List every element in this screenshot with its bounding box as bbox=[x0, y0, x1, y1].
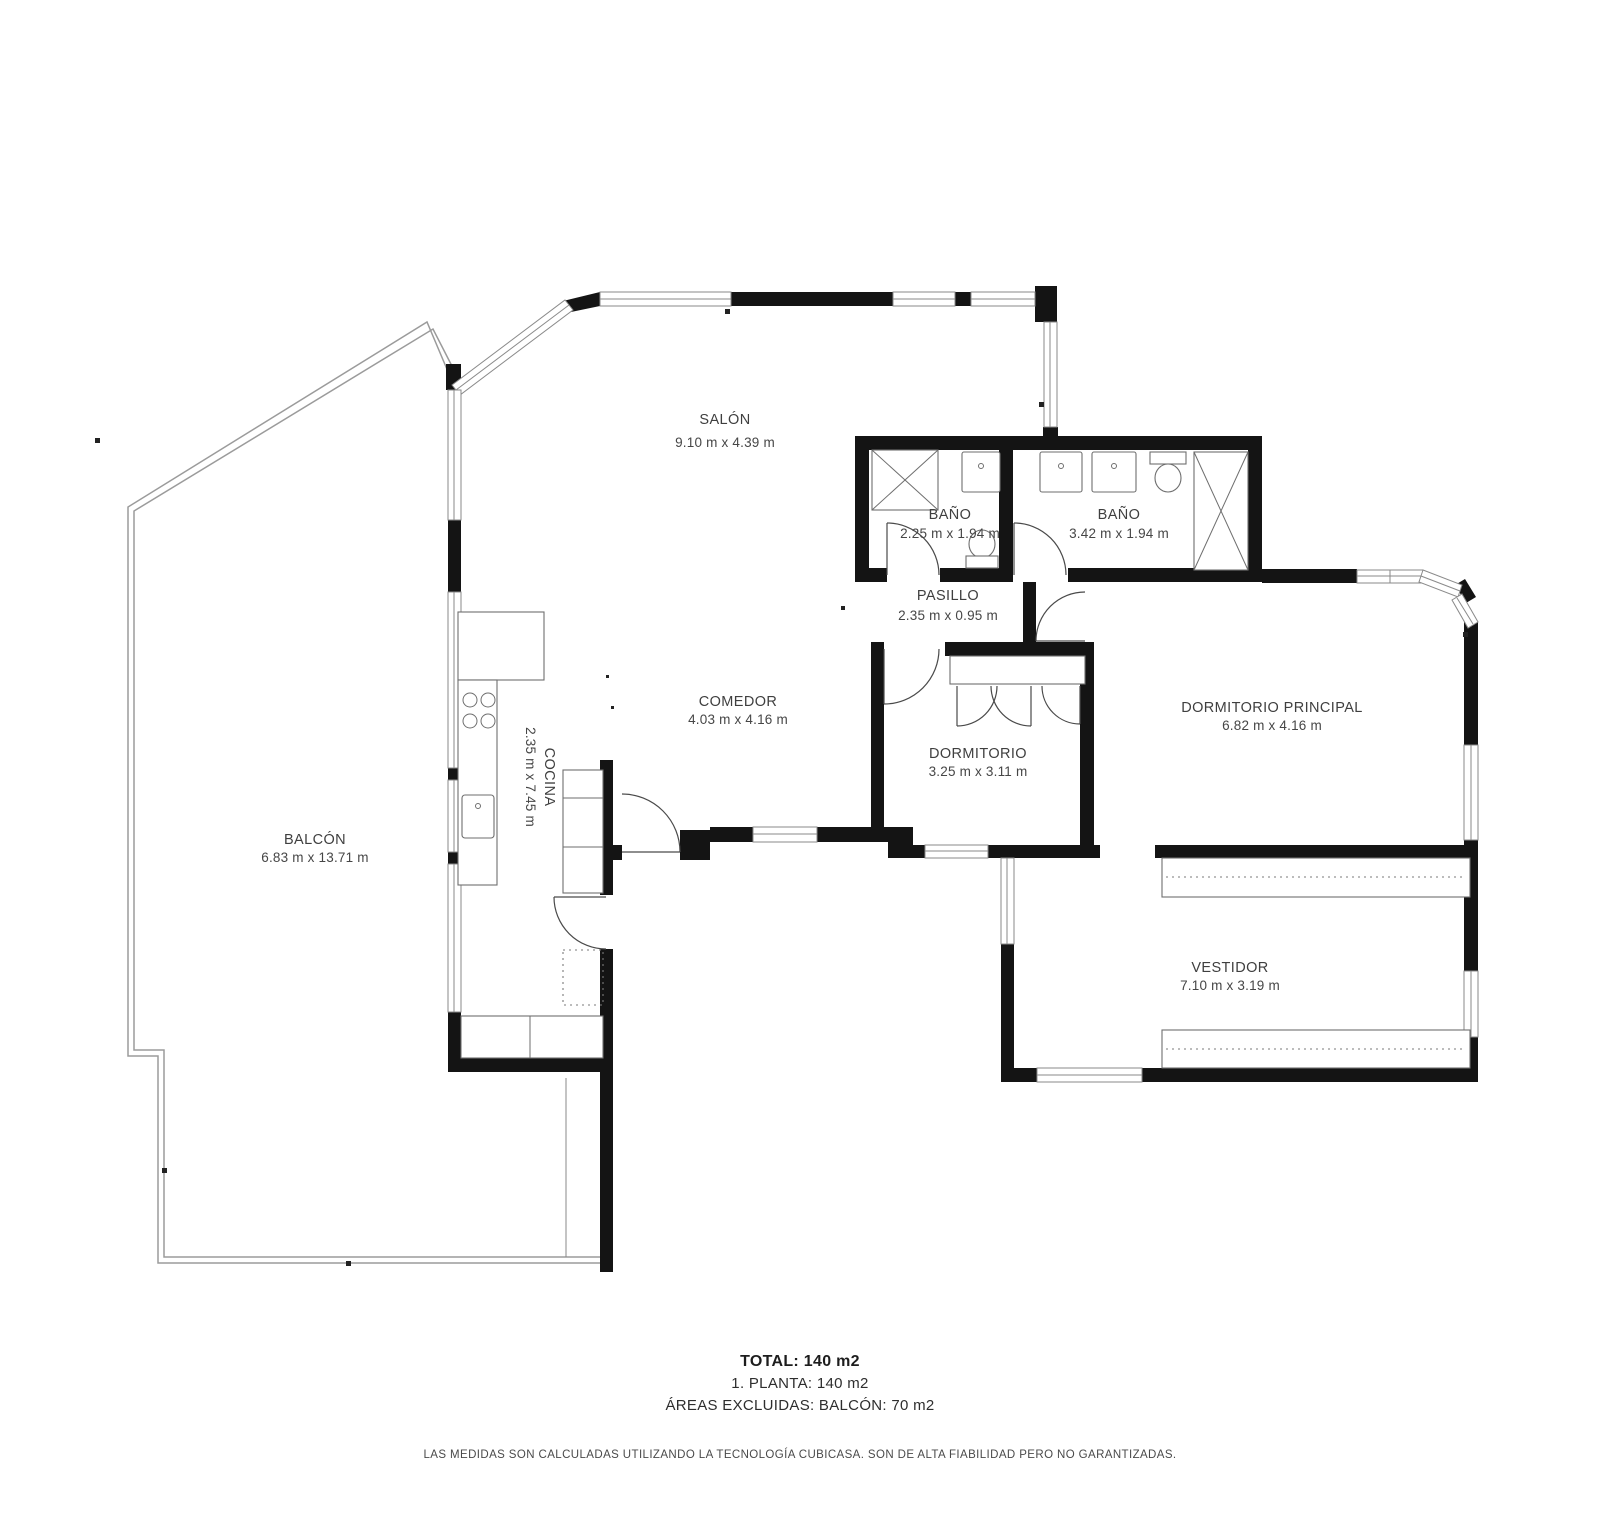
total-area-text: TOTAL: 140 m2 bbox=[740, 1353, 860, 1370]
room-label-balcon: BALCÓN bbox=[284, 831, 346, 848]
floor-area-text: 1. PLANTA: 140 m2 bbox=[731, 1375, 868, 1392]
closet bbox=[950, 656, 1085, 684]
room-dims-comedor: 4.03 m x 4.16 m bbox=[688, 712, 788, 727]
kitchen-sink-icon bbox=[462, 795, 494, 838]
floor-plan-canvas: SALÓN 9.10 m x 4.39 m BAÑO 2.25 m x 1.94… bbox=[0, 0, 1600, 1523]
toilet-icon bbox=[1150, 452, 1186, 464]
room-dims-vestidor: 7.10 m x 3.19 m bbox=[1180, 978, 1280, 993]
closets bbox=[950, 656, 1470, 1068]
kitchen-fixtures bbox=[458, 612, 603, 1058]
kitchen-counter bbox=[461, 1016, 603, 1058]
disclaimer-text: LAS MEDIDAS SON CALCULADAS UTILIZANDO LA… bbox=[423, 1448, 1176, 1461]
summary-block: TOTAL: 140 m2 1. PLANTA: 140 m2 ÁREAS EX… bbox=[423, 1353, 1176, 1461]
kitchen-counter bbox=[458, 680, 497, 885]
room-label-comedor: COMEDOR bbox=[699, 694, 778, 710]
room-label-salon: SALÓN bbox=[699, 411, 750, 428]
room-dims-salon: 9.10 m x 4.39 m bbox=[675, 435, 775, 450]
room-dims-pasillo: 2.35 m x 0.95 m bbox=[898, 608, 998, 623]
room-label-bano-1: BAÑO bbox=[929, 506, 972, 523]
wall-ticks bbox=[95, 309, 1468, 1266]
sink-icon bbox=[1092, 452, 1136, 492]
room-dims-dormitorio: 3.25 m x 3.11 m bbox=[929, 764, 1028, 779]
room-dims-bano-1: 2.25 m x 1.94 m bbox=[900, 526, 1000, 541]
room-dims-cocina: 2.35 m x 7.45 m bbox=[523, 727, 538, 827]
room-label-pasillo: PASILLO bbox=[917, 588, 979, 604]
excluded-area-text: ÁREAS EXCLUIDAS: BALCÓN: 70 m2 bbox=[665, 1397, 934, 1414]
room-dims-balcon: 6.83 m x 13.71 m bbox=[261, 850, 369, 865]
sink-icon bbox=[1040, 452, 1082, 492]
room-dims-bano-2: 3.42 m x 1.94 m bbox=[1069, 526, 1169, 541]
appliance-icon bbox=[563, 950, 603, 1005]
room-label-dormitorio: DORMITORIO bbox=[929, 746, 1027, 762]
room-dims-dormitorio-principal: 6.82 m x 4.16 m bbox=[1222, 718, 1322, 733]
room-label-cocina: COCINA bbox=[541, 748, 557, 807]
room-label-vestidor: VESTIDOR bbox=[1191, 960, 1268, 976]
kitchen-cabinet bbox=[563, 770, 603, 893]
room-label-dormitorio-principal: DORMITORIO PRINCIPAL bbox=[1181, 700, 1362, 716]
kitchen-counter bbox=[458, 612, 544, 680]
room-label-bano-2: BAÑO bbox=[1098, 506, 1141, 523]
sink-icon bbox=[962, 452, 1000, 492]
